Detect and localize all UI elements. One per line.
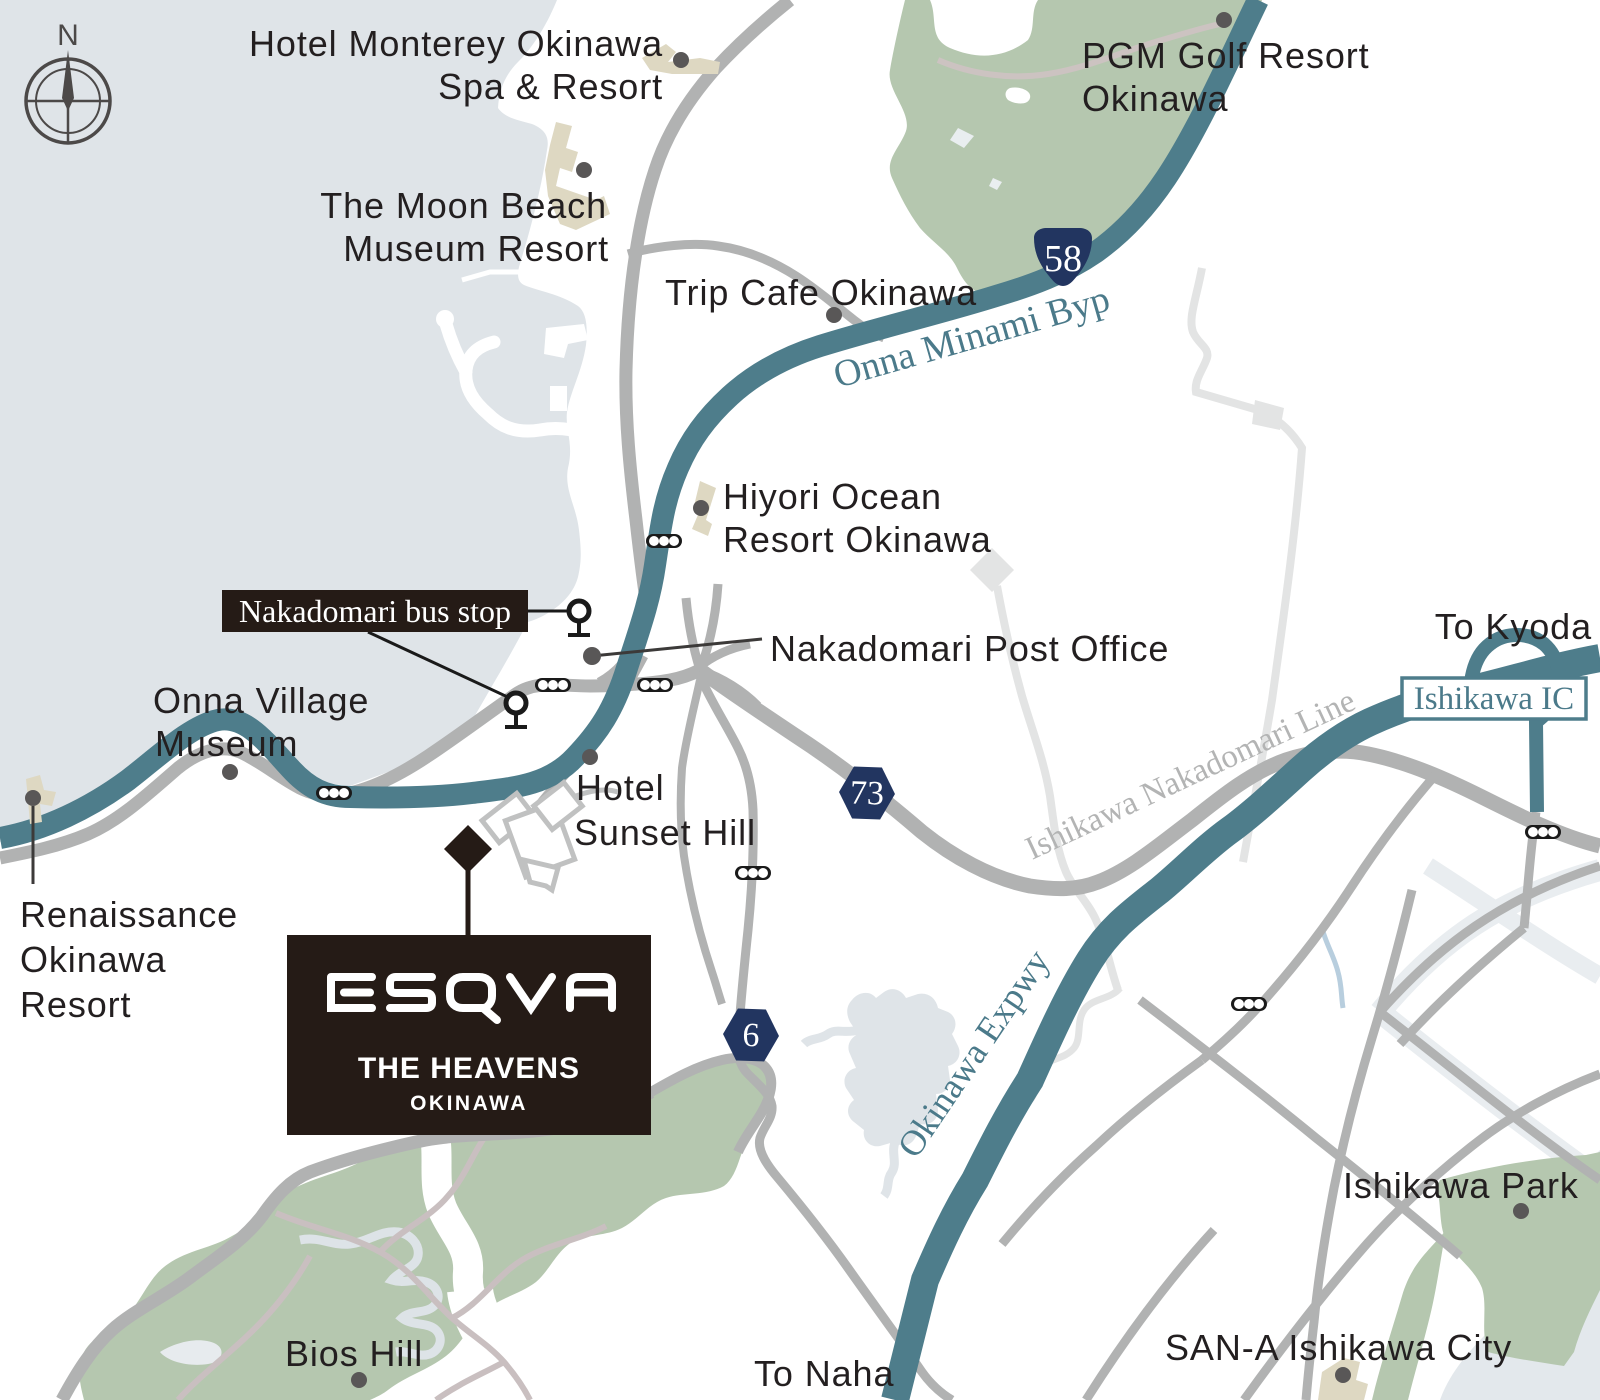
svg-text:Hotel Monterey Okinawa: Hotel Monterey Okinawa [249,23,663,64]
svg-text:Nakadomari bus stop: Nakadomari bus stop [239,593,511,629]
svg-text:Onna Village: Onna Village [153,680,369,721]
svg-text:Resort: Resort [20,984,131,1025]
svg-text:Renaissance: Renaissance [20,894,238,935]
svg-text:Ishikawa IC: Ishikawa IC [1414,681,1574,717]
svg-text:Okinawa: Okinawa [20,939,166,980]
svg-text:THE HEAVENS: THE HEAVENS [358,1052,580,1085]
svg-text:6: 6 [742,1017,760,1055]
svg-text:Trip Cafe Okinawa: Trip Cafe Okinawa [665,272,977,313]
svg-text:Sunset Hill: Sunset Hill [574,812,756,853]
svg-text:Ishikawa Park: Ishikawa Park [1343,1165,1579,1206]
svg-text:Bios Hill: Bios Hill [285,1333,423,1374]
svg-text:Nakadomari Post Office: Nakadomari Post Office [770,628,1169,669]
svg-text:58: 58 [1044,238,1082,280]
svg-text:To Naha: To Naha [754,1353,894,1394]
svg-text:N: N [57,19,79,52]
svg-text:Spa & Resort: Spa & Resort [438,66,663,107]
svg-text:Okinawa: Okinawa [1082,78,1228,119]
svg-text:Hotel: Hotel [576,767,665,808]
svg-text:73: 73 [849,774,884,812]
svg-text:Museum: Museum [155,723,298,764]
svg-text:Hiyori Ocean: Hiyori Ocean [723,476,942,517]
svg-text:PGM Golf Resort: PGM Golf Resort [1082,35,1370,76]
svg-text:Museum Resort: Museum Resort [343,228,609,269]
svg-text:OKINAWA: OKINAWA [410,1092,528,1115]
svg-text:Resort Okinawa: Resort Okinawa [723,519,992,560]
svg-text:To Kyoda: To Kyoda [1435,606,1592,647]
svg-text:SAN-A Ishikawa City: SAN-A Ishikawa City [1165,1327,1512,1368]
svg-text:The Moon Beach: The Moon Beach [320,185,607,226]
